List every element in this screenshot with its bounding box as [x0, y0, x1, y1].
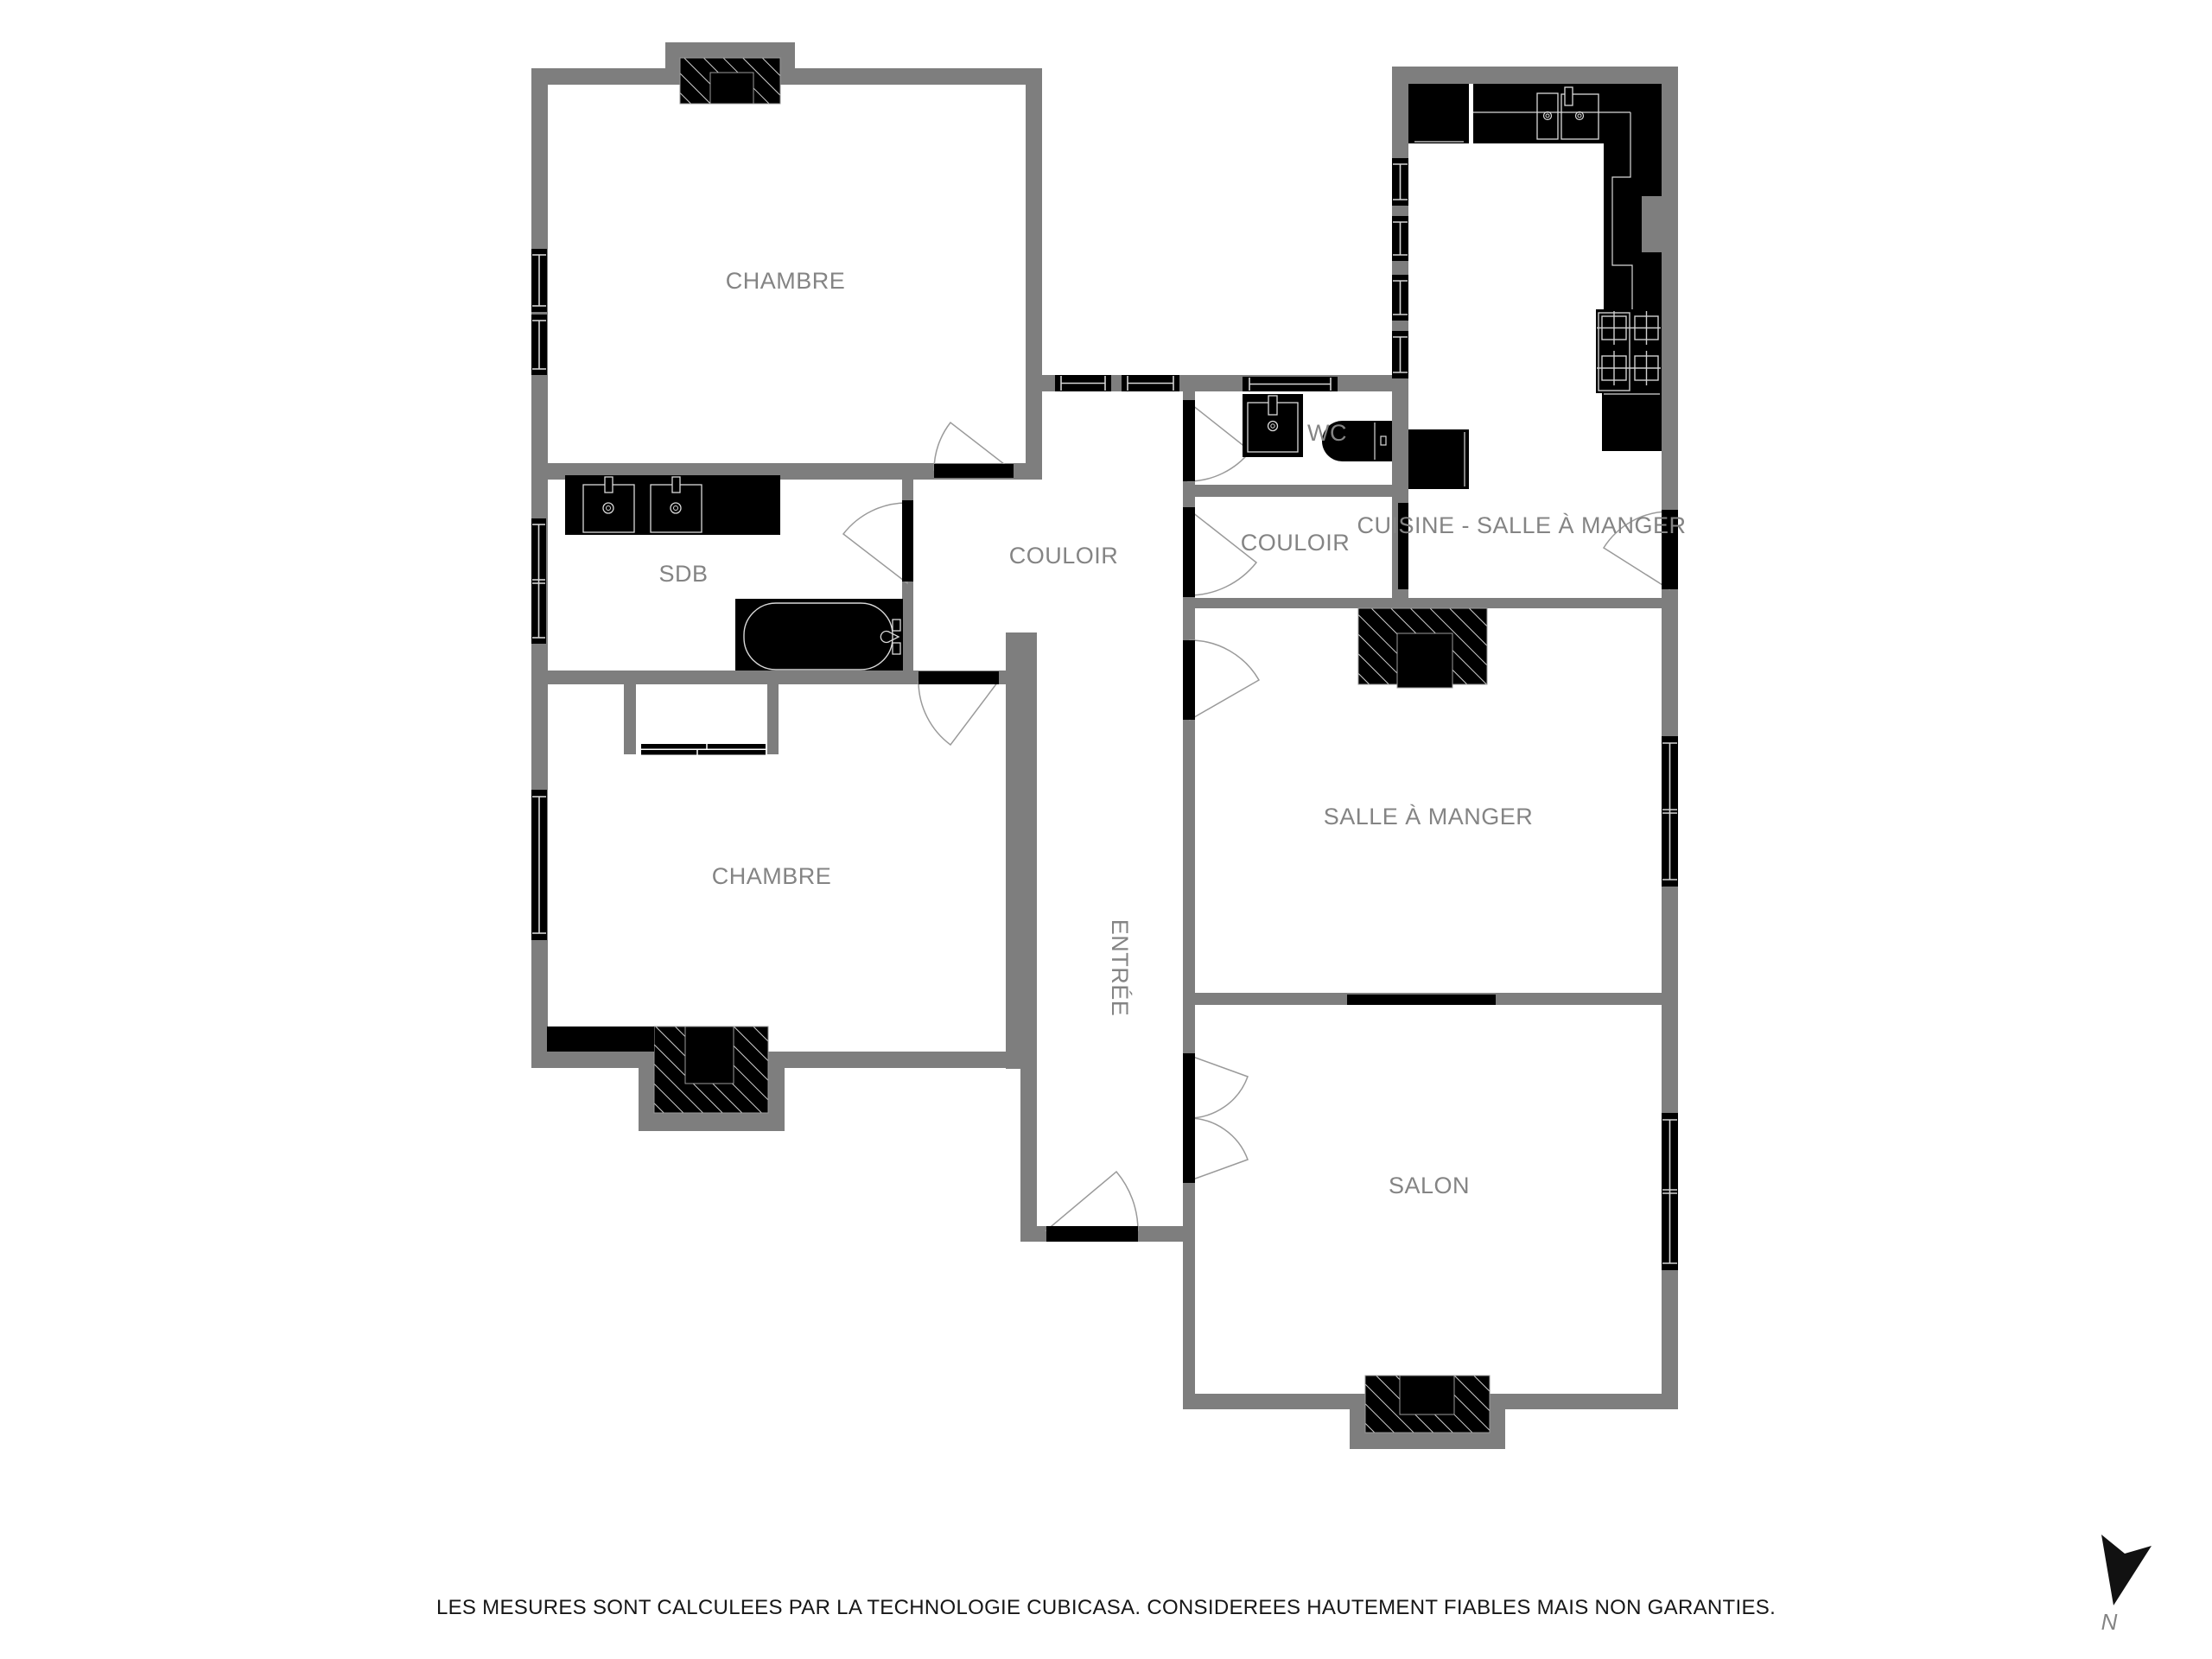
- svg-text:SDB: SDB: [658, 561, 708, 587]
- svg-text:ENTRÉE: ENTRÉE: [1107, 919, 1133, 1017]
- svg-text:CHAMBRE: CHAMBRE: [712, 863, 832, 889]
- svg-text:WC: WC: [1307, 420, 1347, 446]
- svg-text:CHAMBRE: CHAMBRE: [726, 268, 846, 294]
- svg-text:COULOIR: COULOIR: [1009, 543, 1119, 569]
- svg-text:CUISINE - SALLE À MANGER: CUISINE - SALLE À MANGER: [1357, 512, 1686, 538]
- svg-text:SALLE À MANGER: SALLE À MANGER: [1324, 804, 1534, 829]
- svg-text:N: N: [2101, 1609, 2118, 1635]
- svg-text:COULOIR: COULOIR: [1241, 530, 1351, 556]
- svg-text:SALON: SALON: [1389, 1173, 1470, 1198]
- svg-text:LES MESURES SONT CALCULEES PAR: LES MESURES SONT CALCULEES PAR LA TECHNO…: [436, 1596, 1776, 1619]
